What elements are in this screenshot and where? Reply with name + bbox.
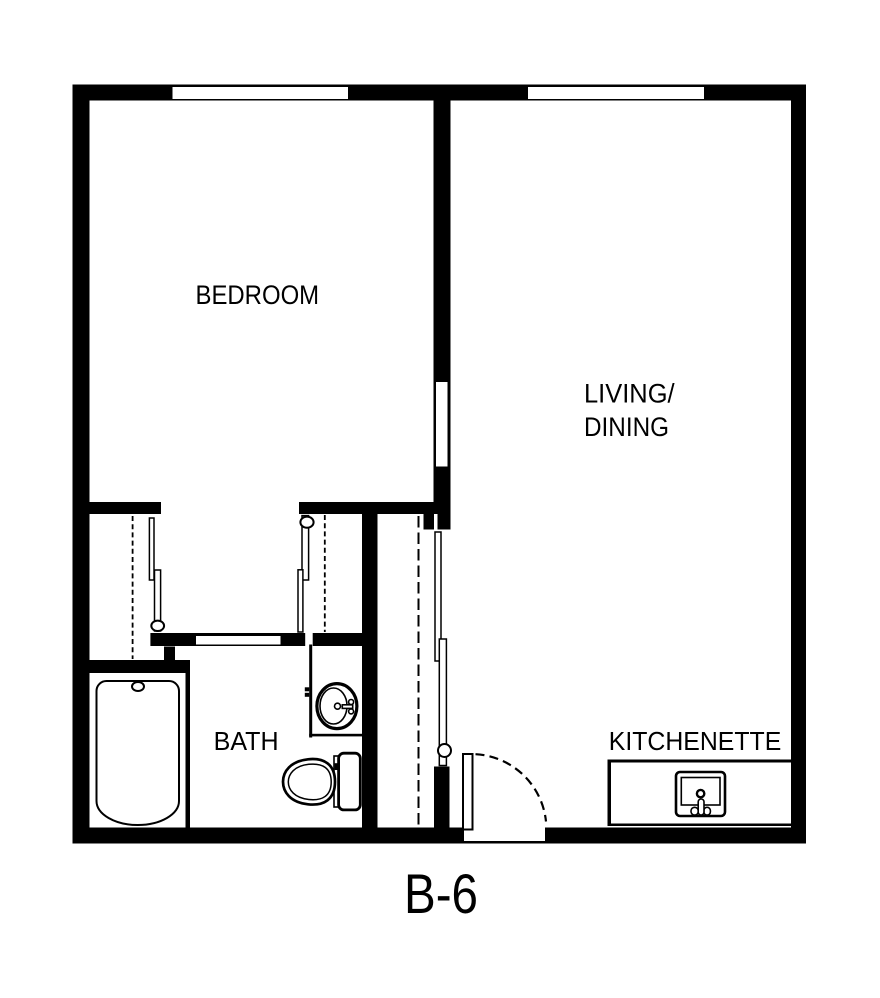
svg-text:DINING: DINING — [584, 412, 669, 442]
svg-text:LIVING/: LIVING/ — [584, 379, 675, 409]
svg-text:BEDROOM: BEDROOM — [196, 280, 320, 310]
svg-text:BATH: BATH — [214, 728, 279, 756]
svg-text:KITCHENETTE: KITCHENETTE — [609, 726, 782, 756]
svg-text:B-6: B-6 — [404, 862, 478, 925]
